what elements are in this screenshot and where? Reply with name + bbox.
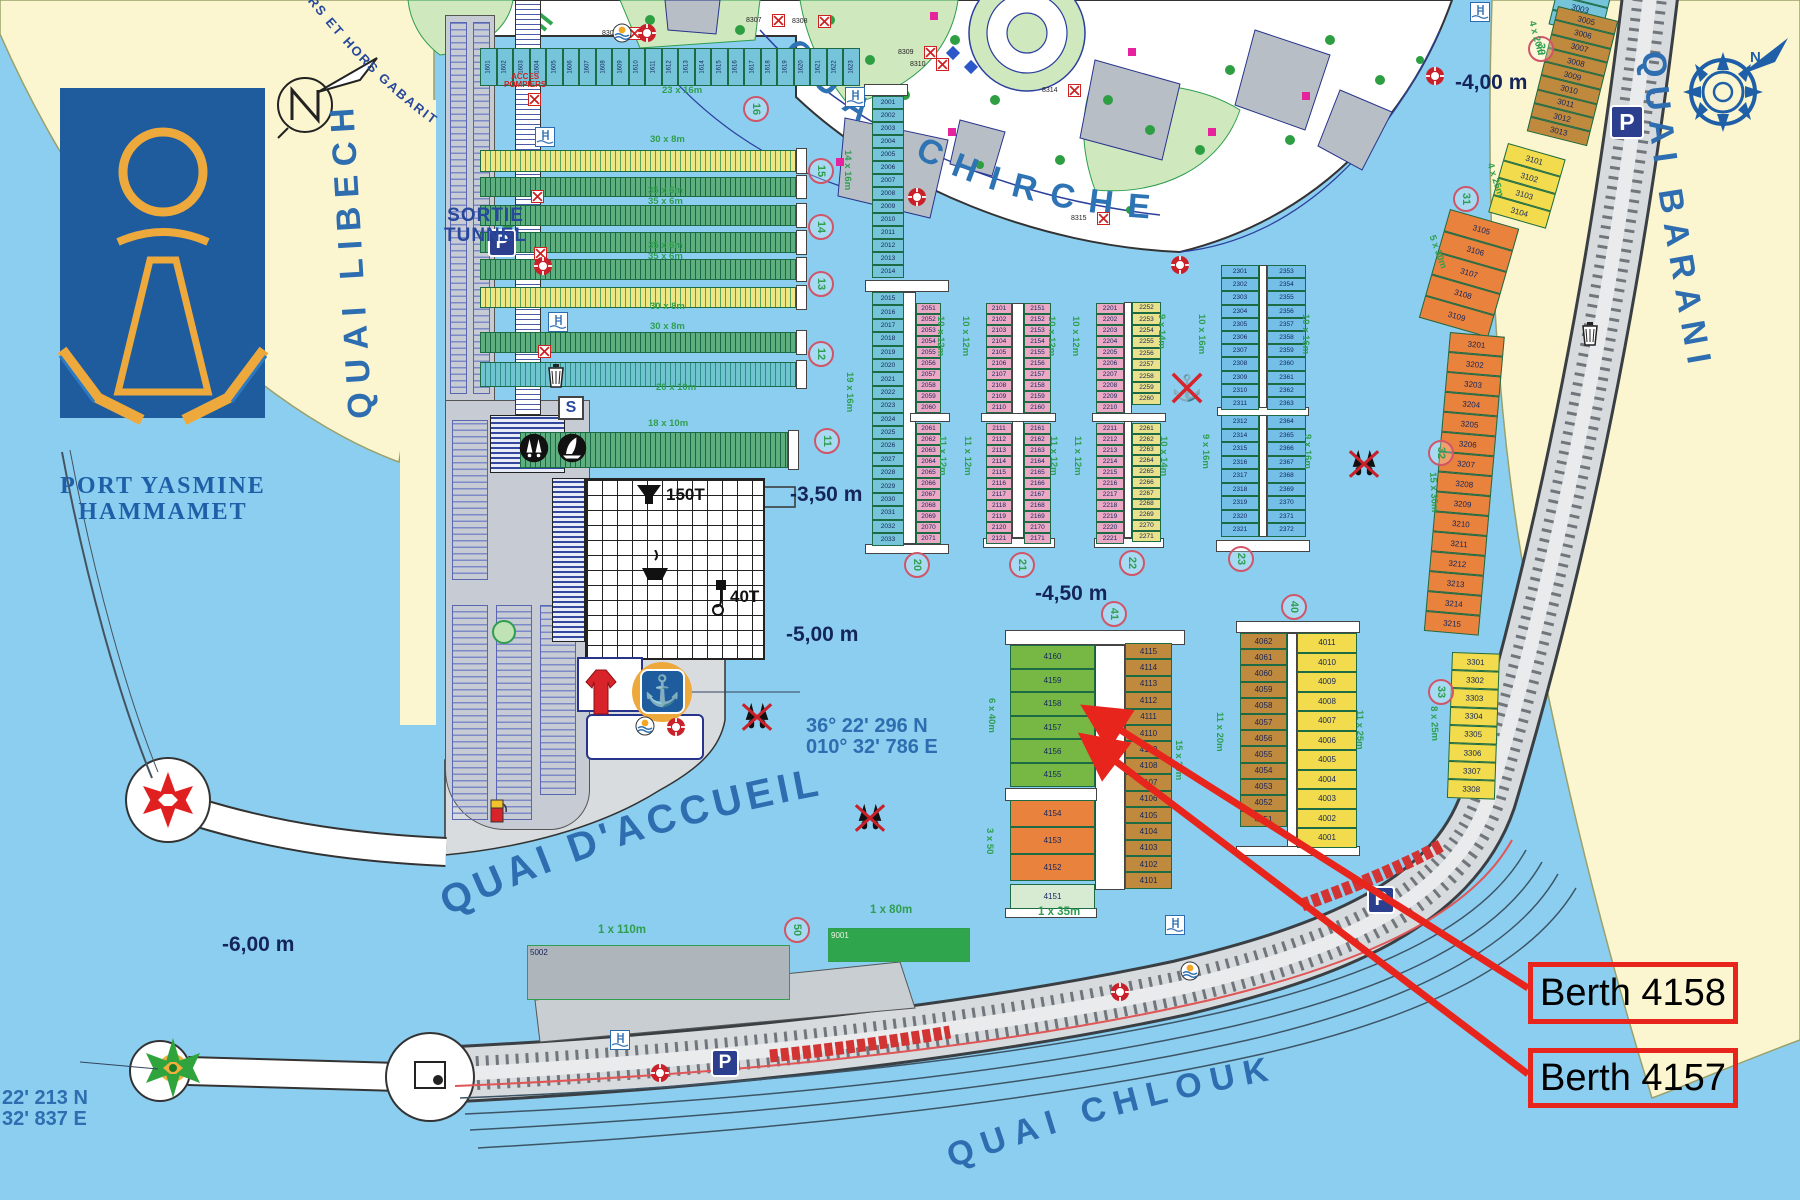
fire-point-icon <box>538 345 551 358</box>
dimension-label: 1 x 80m <box>870 904 912 916</box>
lifebuoy-icon <box>650 1063 670 1083</box>
fire-point-icon <box>1097 212 1110 225</box>
dimension-label: 15 x 20m <box>1173 740 1183 780</box>
parking-sign: P <box>1610 105 1644 139</box>
dimension-label: 14 x 16m <box>842 150 852 190</box>
pontoon-circle-22: 22 <box>1119 550 1145 576</box>
noflippers-icon <box>853 801 887 835</box>
dimension-label: 8 x 25m <box>1428 706 1439 741</box>
fuel-icon <box>487 798 507 824</box>
fire-point-icon <box>1068 84 1081 97</box>
lifebuoy-icon <box>637 23 657 43</box>
lifebuoy-icon <box>1425 66 1445 86</box>
dimension-label: 4 x 25m <box>1485 162 1505 198</box>
dimension-label: 35 x 6m <box>648 197 683 207</box>
dimension-label: 10 x 12m <box>1046 316 1056 356</box>
fire-point-icon <box>772 14 785 27</box>
noflippers-icon <box>740 700 774 734</box>
depth-label: -4,00 m <box>1455 72 1527 94</box>
depth-label: -6,00 m <box>222 934 294 956</box>
fire-point-label: 8309 <box>898 49 914 56</box>
pontoon-circle-12: 12 <box>808 341 834 367</box>
coords-west: 22' 213 N32' 837 E <box>2 1046 88 1172</box>
pontoon-circle-50: 50 <box>784 917 810 943</box>
dimension-label: 10 x 12m <box>1070 316 1080 356</box>
logo-wordmark: PORT YASMINEHAMMAMET <box>30 424 296 575</box>
lift-capacity-label: 150T <box>666 486 705 504</box>
fire-point-icon <box>531 190 544 203</box>
dimension-label: 11 x 25m <box>1354 710 1364 750</box>
port-map: QUAI LIBECHE QUAI CHIRCHE QUAI BARANI QU… <box>0 0 1800 1200</box>
pontoon-circle-16: 16 <box>743 96 769 122</box>
dimension-label: 10 x 16m <box>1196 314 1206 354</box>
noanchor-icon: ⚓ <box>1170 371 1204 405</box>
shower-icon <box>548 312 568 332</box>
lifebuoy-icon <box>533 256 553 276</box>
dimension-label: 11 x 12m <box>962 436 972 476</box>
trash-icon <box>546 364 566 388</box>
trash-icon <box>1580 322 1600 346</box>
pontoon-circle-14: 14 <box>808 214 834 240</box>
crane-icon <box>710 580 732 616</box>
parking-sign: P <box>711 1049 739 1077</box>
dimension-label: 1 x 35m <box>1038 906 1080 918</box>
dimension-label: 5 x 30m <box>1427 234 1448 270</box>
fire-point-icon <box>818 15 831 28</box>
dimension-label: 9 x 14m <box>1156 314 1166 349</box>
dimension-label: 9 x 16m <box>1302 434 1312 469</box>
depth-label: -3,50 m <box>790 484 862 506</box>
dimension-label: 19 x 16m <box>844 372 854 412</box>
berth-4157-callout: Berth 4157 <box>1528 1048 1738 1108</box>
pontoon-circle-11: 11 <box>814 428 840 454</box>
dimension-label: 20 x 10m <box>656 383 696 393</box>
shower-icon <box>1470 2 1490 22</box>
dimension-label: 35 x 6m <box>648 241 683 251</box>
dimension-label: 35 x 6m <box>648 186 683 196</box>
boat-hoist-icon <box>640 550 670 584</box>
dimension-label: 30 x 8m <box>650 135 685 145</box>
fire-point-label: 8310 <box>910 61 926 68</box>
pontoon-circle-23: 23 <box>1228 546 1254 572</box>
noflippers-icon <box>1347 447 1381 481</box>
compass-north-label: N <box>1750 50 1761 66</box>
dimension-label: 3 x 50 <box>984 828 994 854</box>
dimension-label: 10 x 16m <box>1300 314 1310 354</box>
dimension-label: 1 x 110m <box>598 924 646 936</box>
fire-point-label: 8315 <box>1071 215 1087 222</box>
dimension-label: 10 x 12m <box>960 316 970 356</box>
dimension-label: 30 x 8m <box>650 302 685 312</box>
dimension-label: 11 x 12m <box>1072 436 1082 476</box>
pontoon-circle-15: 15 <box>808 158 834 184</box>
dimension-label: 11 x 20m <box>1214 712 1224 752</box>
pontoon-circle-20: 20 <box>904 552 930 578</box>
shower-icon <box>1165 915 1185 935</box>
dimension-label: 35 x 6m <box>648 252 683 262</box>
dimension-label: 11 x 12m <box>1048 436 1058 476</box>
pontoon-circle-33: 33 <box>1428 679 1454 705</box>
depth-label: -4,50 m <box>1035 583 1107 605</box>
depth-label: -5,00 m <box>786 624 858 646</box>
acces-pompiers-label: ACCESPOMPIERS <box>504 56 546 106</box>
fire-point-label: 8307 <box>746 17 762 24</box>
pontoon-circle-31: 31 <box>1453 186 1479 212</box>
fire-point-label: 8308 <box>792 18 808 25</box>
dimension-label: 23 x 16m <box>662 86 702 96</box>
dimension-label: 11 x 12m <box>937 436 947 476</box>
s-sign: S <box>558 396 584 420</box>
dimension-label: 18 x 10m <box>648 419 688 429</box>
shower-icon <box>610 1030 630 1050</box>
crane-capacity-label: 40T <box>730 588 759 606</box>
travel-lift-icon <box>636 484 662 506</box>
dimension-label: 15 x 30m <box>1427 472 1439 513</box>
fire-point-icon <box>936 58 949 71</box>
dimension-label: 6 x 40m <box>986 698 996 733</box>
lifebuoy-icon <box>1170 255 1190 275</box>
lifebuoy-icon <box>907 187 927 207</box>
parking-sign: P <box>1367 886 1395 914</box>
coords-main: 36° 22' 296 N010° 32' 786 E <box>806 674 938 800</box>
sun-icon <box>635 716 655 736</box>
pontoon-circle-13: 13 <box>808 271 834 297</box>
lifebuoy-icon <box>666 717 686 737</box>
pontoon-circle-21: 21 <box>1009 552 1035 578</box>
berth-4158-callout: Berth 4158 <box>1528 962 1738 1024</box>
sortie-tunnel-label: SORTIETUNNEL <box>444 166 527 286</box>
pontoon-circle-32: 32 <box>1428 440 1454 466</box>
shower-icon <box>845 87 865 107</box>
fire-point-label: 8314 <box>1042 87 1058 94</box>
sun-icon <box>1180 961 1200 981</box>
lifebuoy-icon <box>1110 982 1130 1002</box>
shower-icon <box>535 127 555 147</box>
blacksail-icon <box>557 433 587 463</box>
dimension-label: 30 x 8m <box>650 322 685 332</box>
pontoon-circle-40: 40 <box>1281 594 1307 620</box>
sun-icon <box>612 23 632 43</box>
blackdive-icon <box>519 433 549 463</box>
dimension-label: 9 x 16m <box>1200 434 1210 469</box>
dimension-label: 10 x 14m <box>1158 436 1168 476</box>
dimension-label: 10 x 12m <box>935 316 945 356</box>
